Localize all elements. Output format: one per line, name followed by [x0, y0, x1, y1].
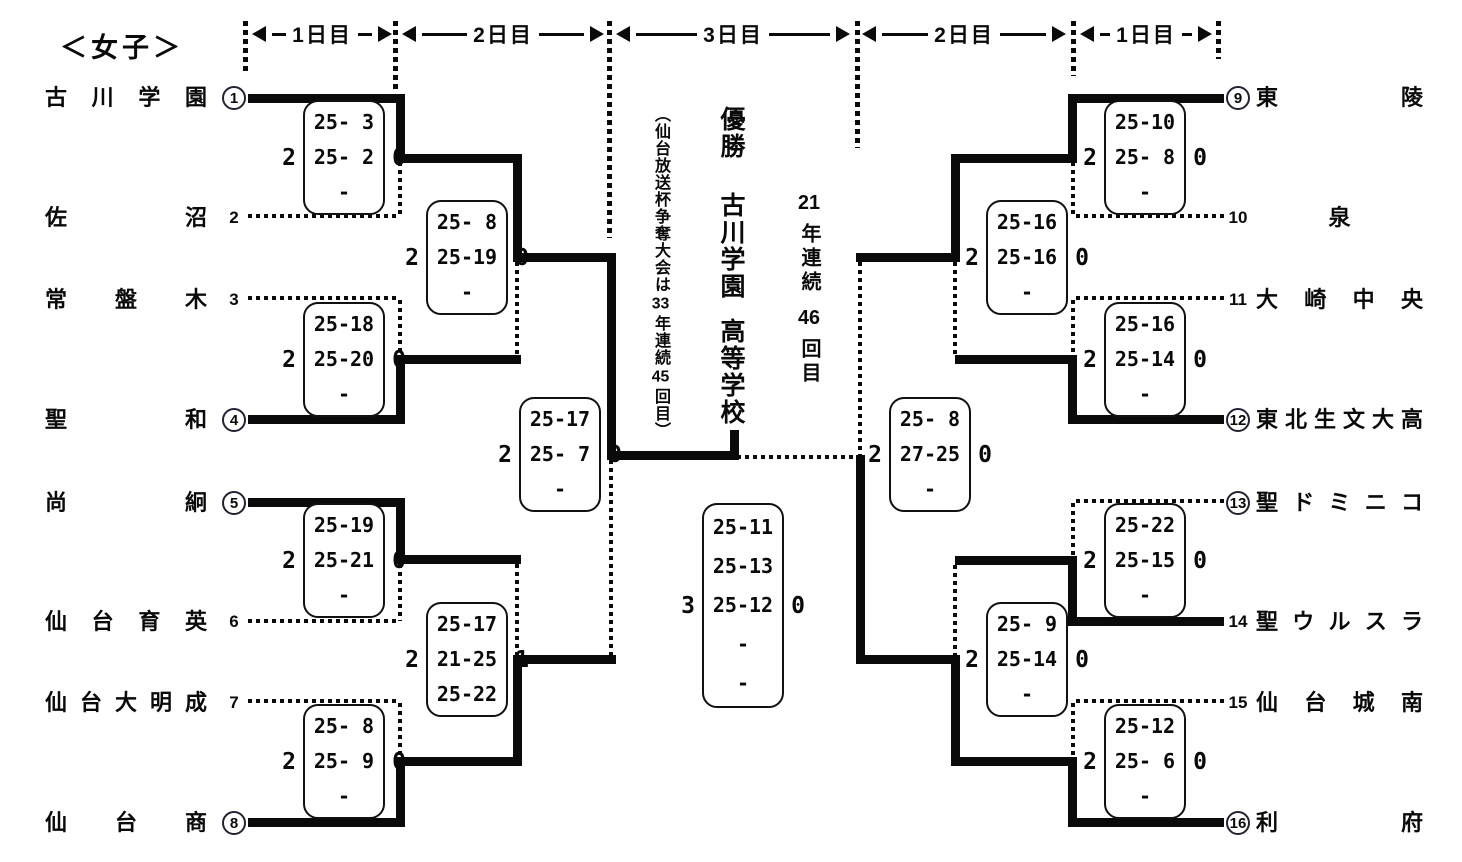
set-score: 25-16: [988, 205, 1066, 240]
team-row: 仙台大明成 7: [45, 688, 246, 718]
score-box: 25-16 25-14 -: [1104, 302, 1186, 417]
arrow-right-icon: [378, 26, 392, 42]
set-score: 25-19: [305, 508, 383, 543]
final-match-score: 3 25-11 25-13 25-12 - - 0: [678, 503, 808, 708]
winner-sets: 2: [1080, 145, 1100, 171]
team-row: 10 泉: [1226, 203, 1423, 233]
score-box: 25-22 25-15 -: [1104, 503, 1186, 618]
set-score: -: [988, 275, 1066, 310]
set-score: -: [704, 625, 782, 664]
loser-sets: 0: [1072, 245, 1092, 271]
loser-sets: 0: [1190, 749, 1210, 775]
set-score: 25- 8: [891, 402, 969, 437]
bracket-line-solid: [856, 655, 960, 664]
match-score: 2 25- 3 25- 2 - 0: [279, 100, 409, 215]
set-score: 25-13: [704, 547, 782, 586]
team-row: 仙台商 8: [45, 808, 246, 838]
team-row: 古川学園 1: [45, 83, 246, 113]
winner-sets: 2: [1080, 749, 1100, 775]
bracket-line-dotted: [248, 619, 396, 623]
match-score: 2 25- 8 25-19 - 0: [402, 200, 532, 315]
day-header-left-2: 2日目: [402, 20, 604, 48]
loser-sets: 0: [605, 442, 625, 468]
loser-sets: 1: [512, 647, 532, 673]
arrow-left-icon: [862, 26, 876, 42]
set-score: 25-10: [1106, 105, 1184, 140]
set-score: 25-19: [428, 240, 506, 275]
match-score: 2 25-19 25-21 - 0: [279, 503, 409, 618]
team-row: 13 聖ドミニコ: [1226, 488, 1423, 518]
set-score: 25-20: [305, 342, 383, 377]
winner-sets: 3: [678, 593, 698, 619]
score-box: 25- 3 25- 2 -: [303, 100, 385, 215]
loser-sets: 0: [389, 548, 409, 574]
arrow-right-icon: [590, 26, 604, 42]
bracket-line-solid: [856, 253, 960, 262]
score-box: 25-16 25-16 -: [986, 200, 1068, 315]
team-name: 古川学園: [45, 83, 207, 113]
arrow-right-icon: [1198, 26, 1212, 42]
winner-sets: 2: [1080, 548, 1100, 574]
match-score: 2 25-16 25-14 - 0: [1080, 302, 1210, 417]
column-divider: [243, 21, 248, 73]
bracket-line-solid: [396, 154, 521, 163]
match-score: 2 25-16 25-16 - 0: [962, 200, 1092, 315]
set-score: 25- 3: [305, 105, 383, 140]
bracket-line-solid: [1068, 94, 1077, 162]
score-box: 25-12 25- 6 -: [1104, 704, 1186, 819]
match-score: 2 25-10 25- 8 - 0: [1080, 100, 1210, 215]
loser-sets: 0: [389, 749, 409, 775]
seed-number: 12: [1226, 408, 1250, 432]
team-name: 仙台大明成: [45, 688, 207, 718]
winner-sets: 2: [865, 442, 885, 468]
match-score: 2 25-18 25-20 - 0: [279, 302, 409, 417]
loser-sets: 0: [1190, 347, 1210, 373]
loser-sets: 0: [788, 593, 808, 619]
team-name: 聖ドミニコ: [1256, 488, 1423, 518]
bracket-line-solid: [396, 355, 521, 364]
set-score: -: [305, 175, 383, 210]
bracket-line-solid: [955, 556, 1077, 565]
set-score: -: [521, 472, 599, 507]
loser-sets: 0: [389, 347, 409, 373]
set-score: 25-22: [1106, 508, 1184, 543]
seed-number: 8: [222, 811, 246, 835]
winner-sets: 2: [402, 245, 422, 271]
score-box: 25-18 25-20 -: [303, 302, 385, 417]
day-header-right-2: 2日目: [862, 20, 1066, 48]
seed-number: 15: [1226, 693, 1250, 713]
champion-title: 優勝古川学園高等学校: [716, 106, 746, 446]
score-box: 25- 8 25-19 -: [426, 200, 508, 315]
team-name: 聖和: [45, 405, 207, 435]
seed-number: 9: [1226, 86, 1250, 110]
bracket-line-solid: [955, 355, 1077, 364]
bracket-line-dotted: [953, 565, 957, 658]
set-score: 25-12: [1106, 709, 1184, 744]
seed-number: 10: [1226, 208, 1250, 228]
day-header-right-1: 1日目: [1080, 20, 1212, 48]
set-score: -: [1106, 175, 1184, 210]
day-header-label: 2日目: [473, 19, 533, 49]
set-score: 25- 7: [521, 437, 599, 472]
winner-sets: 2: [402, 647, 422, 673]
score-box: 25- 8 27-25 -: [889, 397, 971, 512]
bracket-line-solid: [396, 555, 521, 564]
day-header-label: 1日目: [292, 19, 352, 49]
set-score: 25- 2: [305, 140, 383, 175]
score-box: 25-17 21-25 25-22: [426, 602, 508, 717]
day-header-label: 2日目: [934, 19, 994, 49]
winner-sets: 2: [1080, 347, 1100, 373]
seed-number: 13: [1226, 491, 1250, 515]
set-score: 25- 8: [428, 205, 506, 240]
set-score: 25-17: [521, 402, 599, 437]
score-box: 25-11 25-13 25-12 - -: [702, 503, 784, 708]
team-name: 利府: [1256, 808, 1423, 838]
winner-sets: 2: [279, 749, 299, 775]
bracket-line-solid: [955, 154, 1077, 163]
winner-sets: 2: [279, 145, 299, 171]
seed-number: 2: [222, 208, 246, 228]
bracket-line-dotted: [953, 262, 957, 355]
winner-sets: 2: [962, 647, 982, 673]
set-score: 25- 8: [305, 709, 383, 744]
champion-name: 古川学園: [717, 192, 745, 300]
bracket-line-solid: [951, 657, 960, 766]
winner-sets: 2: [279, 548, 299, 574]
seed-number: 1: [222, 86, 246, 110]
bracket-line-dotted: [248, 296, 396, 300]
set-score: 25-11: [704, 508, 782, 547]
arrow-right-icon: [1052, 26, 1066, 42]
score-box: 25- 9 25-14 -: [986, 602, 1068, 717]
loser-sets: 0: [1190, 145, 1210, 171]
team-name: 大崎中央: [1256, 285, 1423, 315]
set-score: 25- 9: [988, 607, 1066, 642]
set-score: 25-16: [988, 240, 1066, 275]
team-row: 尚絅 5: [45, 488, 246, 518]
match-score: 2 25-22 25-15 - 0: [1080, 503, 1210, 618]
loser-sets: 0: [512, 245, 532, 271]
column-divider: [1216, 21, 1221, 59]
seed-number: 14: [1226, 612, 1250, 632]
team-row: 16 利府: [1226, 808, 1423, 838]
bracket-line-solid: [1068, 757, 1077, 827]
team-row: 佐沼 2: [45, 203, 246, 233]
champion-suffix: 高等学校: [717, 318, 745, 426]
set-score: 25-22: [428, 677, 506, 712]
score-box: 25-19 25-21 -: [303, 503, 385, 618]
champion-label: 優勝: [717, 106, 745, 160]
bracket-line-solid: [1068, 818, 1224, 827]
day-header-label: 3日目: [703, 19, 763, 49]
arrow-left-icon: [402, 26, 416, 42]
team-name: 常盤木: [45, 285, 207, 315]
team-name: 佐沼: [45, 203, 207, 233]
set-score: -: [305, 377, 383, 412]
column-divider: [393, 21, 398, 89]
winner-sets: 2: [279, 347, 299, 373]
winner-sets: 2: [495, 442, 515, 468]
loser-sets: 0: [1072, 647, 1092, 673]
column-divider: [607, 21, 612, 238]
team-name: 泉: [1256, 203, 1423, 233]
team-name: 仙台城南: [1256, 688, 1423, 718]
match-score: 2 25-17 25- 7 - 0: [495, 397, 625, 512]
match-score: 2 25-12 25- 6 - 0: [1080, 704, 1210, 819]
score-box: 25- 8 25- 9 -: [303, 704, 385, 819]
loser-sets: 0: [975, 442, 995, 468]
bracket-line-dotted: [1071, 503, 1075, 557]
set-score: -: [305, 578, 383, 613]
tournament-bracket: ＜女子＞ 1日目 2日目 3日目 2日目 1日目 古川学園 1 佐沼 2: [0, 0, 1462, 862]
team-row: 9 東陵: [1226, 83, 1423, 113]
team-row: 11 大崎中央: [1226, 285, 1423, 315]
set-score: -: [1106, 377, 1184, 412]
streak-note: 21年連続46回目: [795, 190, 824, 435]
team-name: 仙台商: [45, 808, 207, 838]
loser-sets: 0: [389, 145, 409, 171]
team-name: 聖ウルスラ: [1256, 607, 1423, 637]
team-row: 12 東北生文大高: [1226, 405, 1423, 435]
bracket-line-solid: [396, 757, 521, 766]
set-score: -: [1106, 578, 1184, 613]
bracket-line-dotted: [737, 455, 858, 459]
team-row: 仙台育英 6: [45, 607, 246, 637]
score-box: 25-10 25- 8 -: [1104, 100, 1186, 215]
seed-number: 11: [1226, 290, 1250, 310]
seed-number: 16: [1226, 811, 1250, 835]
bracket-line-dotted: [248, 699, 396, 703]
set-score: 25-14: [988, 642, 1066, 677]
seed-number: 7: [222, 693, 246, 713]
set-score: -: [1106, 779, 1184, 814]
match-score: 2 25-17 21-25 25-22 1: [402, 602, 532, 717]
score-box: 25-17 25- 7 -: [519, 397, 601, 512]
bracket-line-dotted: [858, 262, 862, 456]
set-score: -: [428, 275, 506, 310]
set-score: 25-15: [1106, 543, 1184, 578]
tournament-note: （仙台放送杯争奪大会は33年連続45回目）: [648, 106, 672, 470]
set-score: 25-17: [428, 607, 506, 642]
bracket-line-solid: [1068, 355, 1077, 424]
day-header-center: 3日目: [616, 20, 850, 48]
arrow-left-icon: [1080, 26, 1094, 42]
bracket-line-solid: [607, 451, 737, 460]
column-divider: [1071, 21, 1076, 76]
set-score: 25-16: [1106, 307, 1184, 342]
set-score: -: [704, 664, 782, 703]
arrow-left-icon: [252, 26, 266, 42]
set-score: 25-18: [305, 307, 383, 342]
team-name: 尚絅: [45, 488, 207, 518]
set-score: 25-12: [704, 586, 782, 625]
bracket-line-dotted: [1076, 296, 1224, 300]
arrow-right-icon: [836, 26, 850, 42]
match-score: 2 25- 9 25-14 - 0: [962, 602, 1092, 717]
bracket-line-solid: [955, 757, 1077, 766]
team-name: 東北生文大高: [1256, 405, 1423, 435]
set-score: 25- 9: [305, 744, 383, 779]
set-score: 25-21: [305, 543, 383, 578]
set-score: 25- 8: [1106, 140, 1184, 175]
seed-number: 3: [222, 290, 246, 310]
match-score: 2 25- 8 27-25 - 0: [865, 397, 995, 512]
team-row: 14 聖ウルスラ: [1226, 607, 1423, 637]
team-row: 15 仙台城南: [1226, 688, 1423, 718]
page-title: ＜女子＞: [60, 26, 184, 65]
team-row: 常盤木 3: [45, 285, 246, 315]
set-score: -: [305, 779, 383, 814]
set-score: -: [988, 677, 1066, 712]
team-row: 聖和 4: [45, 405, 246, 435]
set-score: 25-14: [1106, 342, 1184, 377]
set-score: 21-25: [428, 642, 506, 677]
match-score: 2 25- 8 25- 9 - 0: [279, 704, 409, 819]
team-name: 東陵: [1256, 83, 1423, 113]
bracket-line-solid: [951, 154, 960, 262]
day-header-label: 1日目: [1116, 19, 1176, 49]
team-name: 仙台育英: [45, 607, 207, 637]
day-header-left-1: 1日目: [252, 20, 392, 48]
column-divider: [855, 21, 860, 148]
seed-number: 6: [222, 612, 246, 632]
seed-number: 4: [222, 408, 246, 432]
bracket-line-solid: [856, 455, 865, 664]
set-score: -: [891, 472, 969, 507]
set-score: 25- 6: [1106, 744, 1184, 779]
arrow-left-icon: [616, 26, 630, 42]
loser-sets: 0: [1190, 548, 1210, 574]
bracket-line-dotted: [1076, 699, 1224, 703]
bracket-line-solid: [248, 818, 404, 827]
set-score: 27-25: [891, 437, 969, 472]
seed-number: 5: [222, 491, 246, 515]
winner-sets: 2: [962, 245, 982, 271]
